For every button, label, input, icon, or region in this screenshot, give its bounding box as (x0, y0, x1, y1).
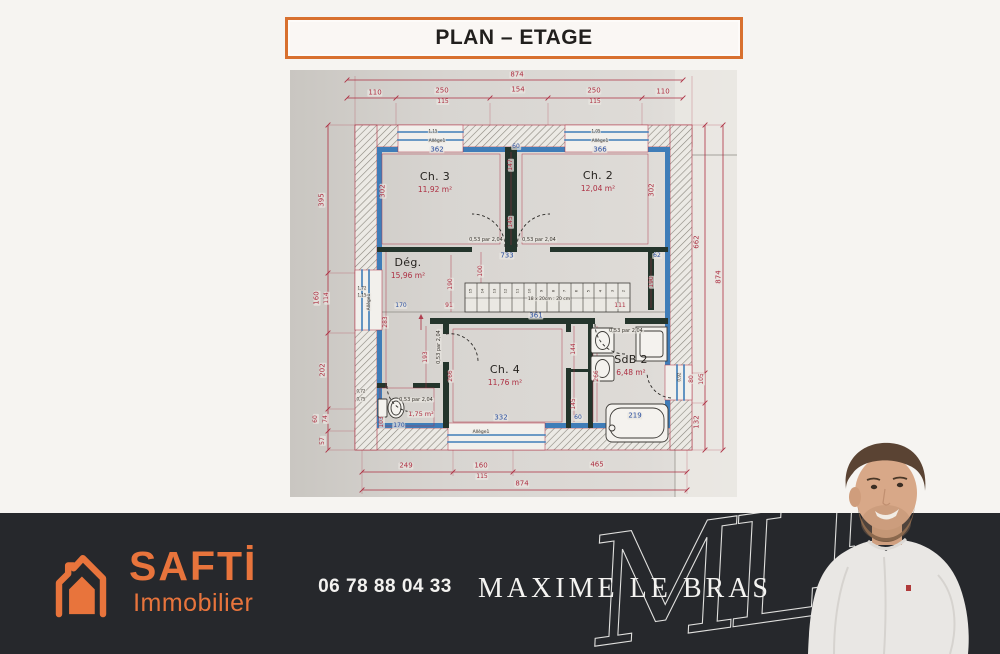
plan-dim-label: 0,72 (356, 390, 366, 394)
plan-dim-label: 10 (528, 288, 532, 294)
plan-dim-label: 132 (694, 414, 701, 429)
plan-dim-label: 145 (508, 215, 514, 228)
plan-dim-label: 9 (540, 289, 544, 293)
plan-dim-label: 105 (699, 372, 705, 385)
plan-dim-label: 114 (324, 291, 330, 304)
plan-dim-label: 874 (514, 481, 529, 488)
plan-title-box: PLAN – ETAGE (285, 17, 743, 59)
plan-dim-label: 1,15 (357, 294, 367, 298)
plan-dim-label: 57 (320, 436, 326, 446)
plan-dim-label: 154 (510, 87, 525, 94)
plan-dim-label: 190 (649, 275, 655, 288)
plan-dim-label: 2 (622, 289, 626, 293)
agent-body (808, 523, 969, 654)
plan-dim-label: 80 (689, 374, 695, 384)
plan-dim-label: 0,53 par 2,04 (608, 329, 643, 334)
plan-dim-label: 219 (627, 413, 642, 420)
plan-dim-label: Allège1 (591, 139, 609, 144)
plan-dim-label: 12 (504, 288, 508, 294)
plan-dim-label: 74 (323, 414, 329, 424)
plan-dim-label: 0,53 par 2,04 (398, 398, 433, 403)
plan-dim-label: 266 (448, 369, 454, 382)
plan-dim-label: 147 (508, 158, 514, 171)
agent-name: MAXIME LE BRAS (465, 573, 785, 605)
plan-dim-label: 115 (436, 99, 449, 105)
plan-dim-label: 250 (586, 88, 601, 95)
plan-dim-label: 395 (319, 192, 326, 207)
agent-photo (788, 437, 1000, 654)
plan-dim-label: 362 (429, 147, 444, 154)
plan-dim-label: 170 (394, 303, 407, 309)
plan-dim-label: 115 (475, 474, 488, 480)
agent-head (846, 443, 926, 542)
plan-dim-label: 15 (469, 288, 473, 294)
safti-logo: SAFTİ Immobilier (48, 546, 257, 618)
plan-dim-label: 0,75 (356, 398, 366, 402)
plan-dim-label: 6 (575, 289, 579, 293)
room-label-ch-3: Ch. 311,92 m² (418, 170, 452, 194)
plan-dim-label: 110 (655, 89, 670, 96)
plan-dim-label: 302 (649, 182, 656, 197)
plan-labels-layer: 8741102501151542501151103951601142026074… (290, 70, 737, 497)
plan-dim-label: 14 (481, 288, 485, 294)
plan-dim-label: Allège1 (472, 430, 490, 435)
plan-dim-label: Allège1 (367, 293, 372, 311)
plan-dim-label: 103 (379, 415, 385, 428)
room-label-ch-4: Ch. 411,76 m² (488, 363, 522, 387)
plan-dim-label: 0,53 par 2,04 (521, 238, 556, 243)
floor-plan-figure: 8741102501151542501151103951601142026074… (290, 70, 737, 497)
plan-dim-label: 266 (594, 369, 600, 382)
plan-dim-label: 144 (571, 342, 577, 355)
plan-dim-label: 60 (573, 415, 583, 421)
plan-dim-label: 1,75 m² (407, 411, 434, 418)
plan-dim-label: 145 (571, 397, 577, 410)
plan-dim-label: 302 (380, 183, 387, 198)
plan-dim-label: 361 (528, 313, 543, 320)
plan-dim-label: 1,72 (357, 287, 367, 291)
plan-dim-label: 160 (473, 463, 488, 470)
plan-dim-label: 1,05 (591, 130, 601, 134)
plan-dim-label: 874 (509, 72, 524, 79)
plan-dim-label: 332 (493, 415, 508, 422)
room-label-ch-2: Ch. 212,04 m² (581, 169, 615, 193)
plan-dim-label: 62 (652, 253, 662, 259)
plan-dim-label: 100 (478, 264, 484, 277)
plan-dim-label: 202 (320, 362, 327, 377)
plan-dim-label: 733 (499, 253, 514, 260)
plan-dim-label: 160 (314, 290, 321, 305)
plan-dim-label: 190 (448, 277, 454, 290)
plan-dim-label: 4 (599, 289, 603, 293)
plan-dim-label: 250 (434, 88, 449, 95)
brand-tagline: Immobilier (129, 589, 257, 618)
room-label-sdb-2: SdB 26,48 m² (614, 353, 648, 377)
flyer-page: PLAN – ETAGE (0, 0, 1000, 654)
agent-phone: 06 78 88 04 33 (275, 576, 495, 598)
plan-dim-label: 111 (613, 303, 626, 309)
plan-dim-label: 115 (588, 99, 601, 105)
plan-dim-label: 0,92 (678, 372, 682, 382)
plan-dim-label: 60 (313, 414, 319, 424)
plan-dim-label: 5 (587, 289, 591, 293)
plan-dim-label: 170 (392, 423, 405, 429)
plan-dim-label: 249 (398, 463, 413, 470)
plan-dim-label: 8 (552, 289, 556, 293)
plan-dim-label: 193 (423, 350, 429, 363)
plan-dim-label: 3 (611, 289, 615, 293)
plan-dim-label: 1,15 (428, 130, 438, 134)
room-label-d-g-: Dég.15,96 m² (391, 256, 425, 280)
plan-dim-label: 662 (694, 234, 701, 249)
plan-dim-label: 366 (592, 147, 607, 154)
plan-dim-label: 0,53 par 2,04 (437, 329, 442, 364)
plan-dim-label: 11 (516, 288, 520, 294)
safti-house-icon (48, 546, 114, 618)
plan-dim-label: 0,53 par 2,04 (468, 238, 503, 243)
plan-dim-label: 110 (367, 90, 382, 97)
plan-dim-label: Allège1 (428, 139, 446, 144)
brand-name: SAFTİ (129, 546, 257, 587)
plan-dim-label: 91 (444, 303, 454, 309)
plan-title: PLAN – ETAGE (435, 26, 592, 50)
plan-dim-label: 874 (716, 269, 723, 284)
plan-dim-label: 13 (493, 288, 497, 294)
plan-dim-label: 60 (511, 144, 521, 150)
plan-dim-label: 7 (563, 289, 567, 293)
plan-dim-label: 18 x 20cm : 20 cm (527, 297, 571, 302)
plan-dim-label: 465 (589, 462, 604, 469)
plan-dim-label: 283 (383, 315, 389, 328)
